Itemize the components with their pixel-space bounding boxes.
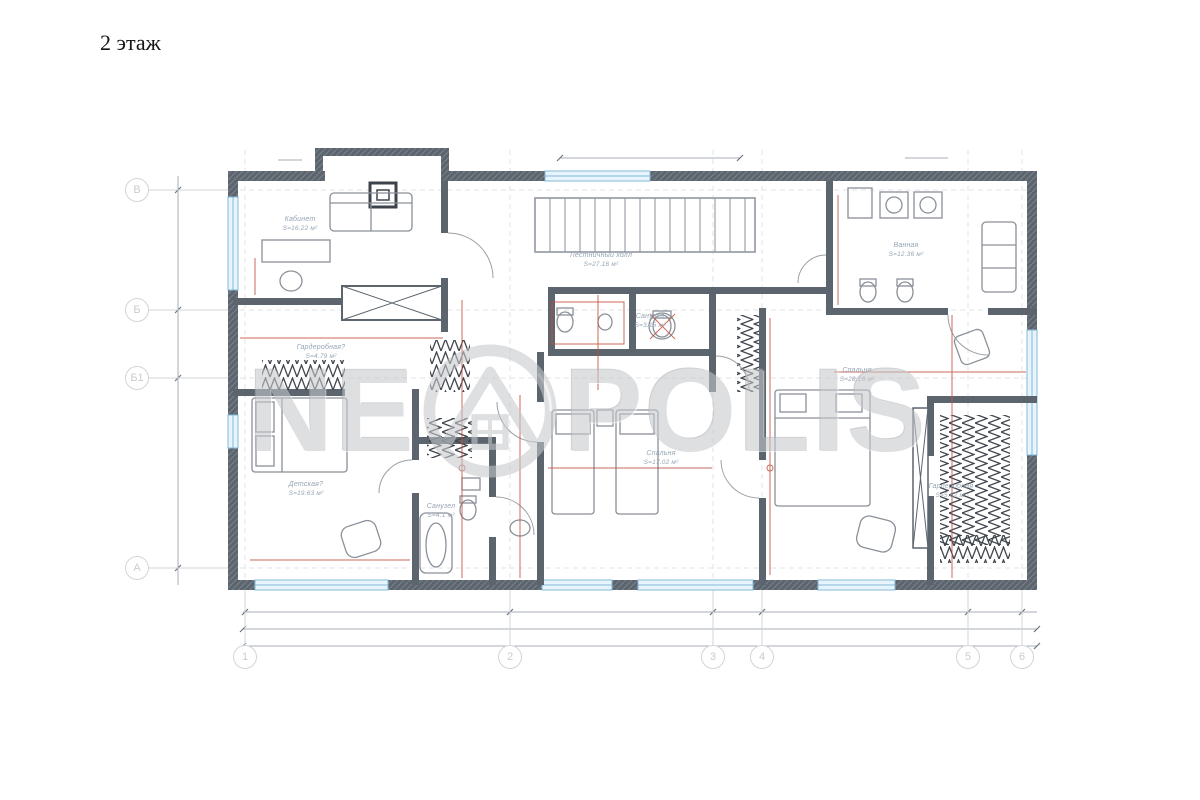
axis-row-b1: Б1 bbox=[125, 366, 149, 390]
floor-plan-drawing bbox=[0, 0, 1200, 800]
room-label-wc-left: СанузелS=4.1 м² bbox=[427, 503, 456, 520]
room-label-wardrobe-left: Гардеробная?S=4.79 м² bbox=[297, 344, 346, 361]
shaft-box bbox=[342, 286, 442, 320]
room-label-wardrobe-right: ГардеробнаяS=5.62 м² bbox=[929, 483, 974, 500]
axis-row-v: В bbox=[125, 178, 149, 202]
axis-row-a: А bbox=[125, 556, 149, 580]
axis-col-6: 6 bbox=[1010, 645, 1034, 669]
room-label-childrens-room: Детская?S=19.63 м² bbox=[289, 481, 324, 498]
floor-plan-page: 2 этаж bbox=[0, 0, 1200, 800]
room-label-bedroom-right: СпальняS=28.16 м² bbox=[840, 367, 875, 384]
axis-col-1: 1 bbox=[233, 645, 257, 669]
axis-row-b: Б bbox=[125, 298, 149, 322]
room-label-stair-hall: Лестничный холлS=27.16 м² bbox=[570, 252, 632, 269]
axis-col-5: 5 bbox=[956, 645, 980, 669]
room-label-study: КабинетS=16.22 м² bbox=[283, 216, 318, 233]
stairs bbox=[535, 198, 755, 252]
room-label-wc-center: СанузелS=3.15 м² bbox=[634, 313, 665, 330]
room-label-bedroom-center: СпальняS=17.02 м² bbox=[644, 450, 679, 467]
axis-col-3: 3 bbox=[701, 645, 725, 669]
room-label-bathroom: ВаннаяS=12.36 м² bbox=[889, 242, 924, 259]
axis-col-4: 4 bbox=[750, 645, 774, 669]
axis-col-2: 2 bbox=[498, 645, 522, 669]
